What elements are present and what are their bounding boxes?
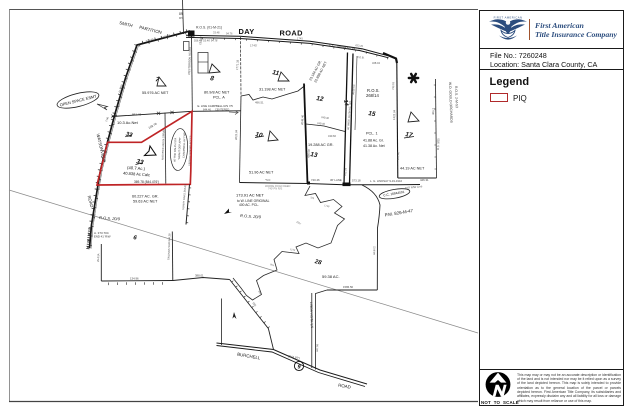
svg-text:31.198 AC NET: 31.198 AC NET bbox=[259, 88, 286, 92]
svg-text:33.48: 33.48 bbox=[213, 31, 220, 35]
svg-text:PCL. A: PCL. A bbox=[213, 96, 225, 100]
svg-text:SUNNY OAKS 363.09: SUNNY OAKS 363.09 bbox=[181, 184, 187, 210]
svg-text:MODIFIED 663.04 SPRAY: MODIFIED 663.04 SPRAY bbox=[161, 129, 166, 160]
svg-text:1771.33: 1771.33 bbox=[235, 59, 240, 70]
svg-text:CENTERED: CENTERED bbox=[215, 108, 229, 112]
svg-text:P.M. 826-M-47: P.M. 826-M-47 bbox=[384, 208, 413, 217]
svg-text:1738: 1738 bbox=[324, 204, 331, 208]
svg-text:46.97/2: 46.97/2 bbox=[372, 246, 376, 255]
svg-text:60.227 AC. GR.: 60.227 AC. GR. bbox=[132, 195, 159, 199]
svg-text:400 AC. PCL.: 400 AC. PCL. bbox=[239, 203, 259, 207]
svg-text:268/14: 268/14 bbox=[366, 93, 379, 98]
svg-text:CHAMPBELL AV THR: CHAMPBELL AV THR bbox=[182, 132, 187, 158]
svg-text:R.O.S. 2-M-53: R.O.S. 2-M-53 bbox=[454, 86, 459, 108]
svg-text:19.288 AC GR.: 19.288 AC GR. bbox=[308, 143, 334, 147]
svg-text:446.31: 446.31 bbox=[420, 178, 429, 182]
svg-text:173.91 AC NET: 173.91 AC NET bbox=[236, 193, 264, 198]
svg-text:40′ R/W RALPH STA: 40′ R/W RALPH STA bbox=[173, 138, 178, 162]
svg-text:59.38 AC.: 59.38 AC. bbox=[322, 274, 340, 279]
svg-text:“GRANT DEP APR”: “GRANT DEP APR” bbox=[177, 137, 182, 160]
svg-text:854: 854 bbox=[270, 263, 275, 267]
svg-text:BURCHELL: BURCHELL bbox=[237, 352, 261, 361]
svg-text:P.O.B.: P.O.B. bbox=[357, 55, 365, 60]
svg-text:1057: 1057 bbox=[295, 220, 302, 226]
svg-text:LINDA VISTA ’LN: LINDA VISTA ’LN bbox=[309, 302, 314, 329]
svg-text:165.04: 165.04 bbox=[343, 167, 348, 176]
svg-text:E. LINE CAMPBELL R/S 7/5: E. LINE CAMPBELL R/S 7/5 bbox=[198, 104, 234, 108]
svg-text:28: 28 bbox=[313, 259, 323, 267]
svg-text:103.79: 103.79 bbox=[148, 122, 158, 130]
svg-text:1745: 1745 bbox=[297, 37, 303, 41]
svg-text:10.3 Ac.Net: 10.3 Ac.Net bbox=[117, 120, 139, 125]
svg-text:1322.04: 1322.04 bbox=[392, 109, 396, 120]
svg-text:94.76: 94.76 bbox=[226, 32, 233, 36]
svg-text:51.96 AC NET: 51.96 AC NET bbox=[249, 171, 274, 175]
svg-text:430.66: 430.66 bbox=[328, 134, 336, 138]
svg-text:369.78 (844.476′): 369.78 (844.476′) bbox=[134, 180, 159, 184]
svg-text:1586.50: 1586.50 bbox=[343, 285, 354, 289]
svg-text:1745′: 1745′ bbox=[250, 44, 258, 48]
svg-text:134.96: 134.96 bbox=[130, 277, 139, 281]
svg-text:R.S. 9/25: R.S. 9/25 bbox=[436, 138, 440, 150]
svg-text:ROAD: ROAD bbox=[87, 195, 95, 208]
svg-text:13: 13 bbox=[310, 151, 319, 159]
svg-text:END 41′ R/W: END 41′ R/W bbox=[94, 234, 111, 238]
svg-text:R.O.S. 20/9: R.O.S. 20/9 bbox=[240, 213, 262, 219]
svg-text:36.08 AC: 36.08 AC bbox=[351, 84, 356, 95]
svg-text:TAILINGS SUR 964.28: TAILINGS SUR 964.28 bbox=[167, 233, 172, 260]
svg-text:R.O.S. 20/9: R.O.S. 20/9 bbox=[99, 215, 121, 221]
svg-text:OPEN SPACE ESMT: OPEN SPACE ESMT bbox=[59, 93, 98, 107]
svg-text:PCL. 1: PCL. 1 bbox=[366, 132, 378, 136]
svg-text:8: 8 bbox=[210, 75, 215, 83]
svg-text:7.50: 7.50 bbox=[104, 116, 110, 123]
svg-text:36′ LANE: 36′ LANE bbox=[330, 178, 342, 182]
svg-text:733.03: 733.03 bbox=[391, 81, 395, 90]
svg-text:844.46: 844.46 bbox=[203, 108, 211, 112]
svg-text:40.838 Ac Calc: 40.838 Ac Calc bbox=[123, 171, 150, 178]
svg-text:59.63 AC NET: 59.63 AC NET bbox=[133, 200, 158, 204]
svg-text:W.O. GOULD ORCHARDS: W.O. GOULD ORCHARDS bbox=[448, 82, 453, 124]
svg-text:SMITH: SMITH bbox=[119, 20, 133, 28]
svg-text:577.40: 577.40 bbox=[396, 151, 400, 160]
svg-text:467.08: 467.08 bbox=[315, 343, 319, 352]
svg-text:861.46: 861.46 bbox=[132, 112, 142, 116]
svg-text:ROAD: ROAD bbox=[338, 383, 351, 390]
svg-text:WESTBROOK 663.04: WESTBROOK 663.04 bbox=[187, 47, 192, 75]
svg-text:2023.04: 2023.04 bbox=[234, 129, 238, 140]
svg-text:466.2: 466.2 bbox=[431, 107, 435, 115]
svg-text:55.976 AC NET: 55.976 AC NET bbox=[142, 91, 169, 95]
svg-text:41.38 Ac. Net: 41.38 Ac. Net bbox=[363, 144, 385, 148]
svg-text:41.88 Ac. Gr.: 41.88 Ac. Gr. bbox=[363, 139, 384, 143]
svg-text:10: 10 bbox=[255, 131, 264, 139]
svg-text:740.46: 740.46 bbox=[311, 178, 320, 182]
svg-text:44.19 AC NET: 44.19 AC NET bbox=[400, 167, 425, 171]
svg-text:13.197: 13.197 bbox=[198, 36, 204, 46]
svg-text:12: 12 bbox=[316, 95, 325, 103]
svg-text:6: 6 bbox=[133, 235, 138, 242]
svg-text:PARTITION: PARTITION bbox=[139, 25, 163, 35]
svg-text:80.9/8 AC NET: 80.9/8 AC NET bbox=[204, 91, 230, 95]
svg-text:740′ PN R/S: 740′ PN R/S bbox=[268, 187, 282, 191]
svg-text:15: 15 bbox=[368, 110, 377, 118]
svg-text:L. G. LINDSAY 9-19-1910: L. G. LINDSAY 9-19-1910 bbox=[370, 179, 403, 183]
svg-text:573.18: 573.18 bbox=[352, 179, 361, 183]
svg-text:DAY: DAY bbox=[239, 27, 255, 36]
svg-text:25-01A: 25-01A bbox=[96, 253, 100, 262]
svg-text:1142: 1142 bbox=[290, 248, 296, 252]
svg-text:388.01: 388.01 bbox=[195, 274, 204, 278]
svg-text:328.04: 328.04 bbox=[372, 61, 380, 65]
svg-text:*500: *500 bbox=[265, 178, 271, 182]
svg-text:329: 329 bbox=[310, 196, 315, 200]
svg-text:2048.40: 2048.40 bbox=[300, 114, 305, 125]
svg-text:FIRST AMERICAN: FIRST AMERICAN bbox=[494, 16, 523, 20]
svg-text:496.51: 496.51 bbox=[255, 101, 264, 105]
svg-text:750: 750 bbox=[251, 301, 257, 307]
svg-text:318.64: 318.64 bbox=[162, 33, 171, 39]
svg-text:ROAD: ROAD bbox=[280, 28, 304, 37]
svg-text:32: 32 bbox=[125, 132, 133, 139]
svg-text:R.O.S. (01-M-21): R.O.S. (01-M-21) bbox=[196, 26, 222, 30]
svg-text:11: 11 bbox=[272, 69, 280, 77]
svg-text:255-01: 255-01 bbox=[91, 213, 97, 222]
svg-text:249.40: 249.40 bbox=[321, 115, 330, 120]
svg-text:RS: RS bbox=[179, 16, 183, 20]
